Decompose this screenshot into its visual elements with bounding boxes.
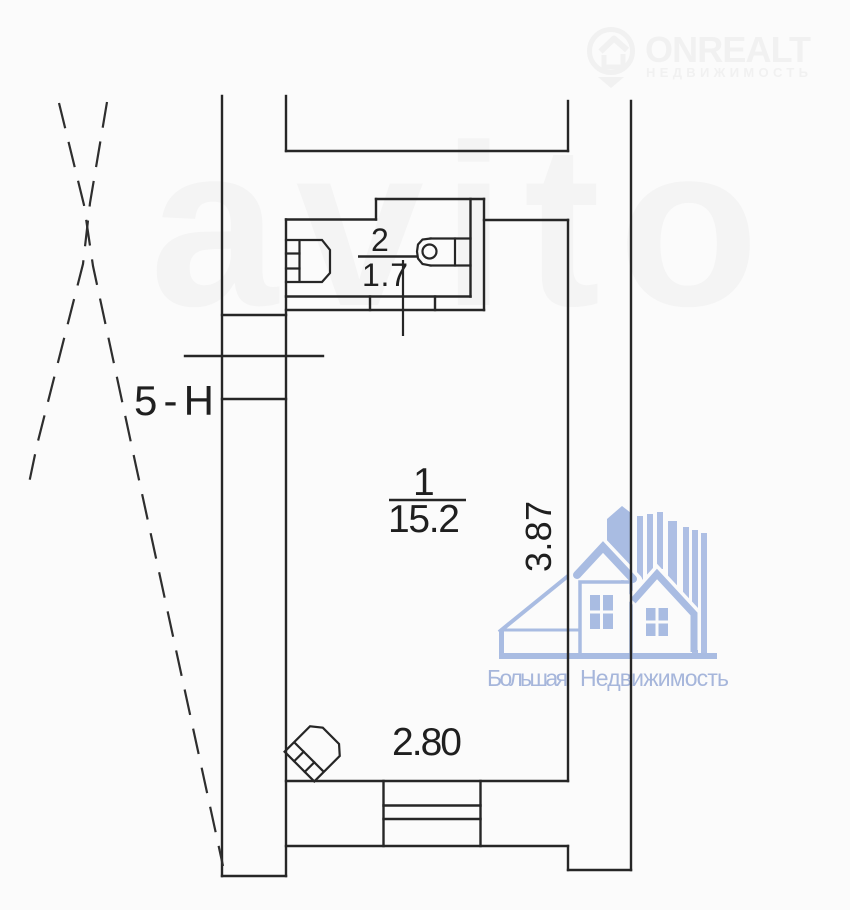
svg-text:5-Н: 5-Н — [134, 377, 214, 424]
svg-text:1.7: 1.7 — [362, 257, 408, 293]
svg-text:2.80: 2.80 — [392, 721, 462, 764]
svg-text:2: 2 — [371, 222, 389, 258]
svg-text:Большая: Большая — [487, 665, 568, 691]
svg-text:ONREALT: ONREALT — [645, 29, 812, 70]
svg-text:3.87: 3.87 — [518, 501, 559, 572]
svg-text:15.2: 15.2 — [388, 498, 460, 541]
svg-text:Недвижимость: Недвижимость — [580, 665, 729, 691]
